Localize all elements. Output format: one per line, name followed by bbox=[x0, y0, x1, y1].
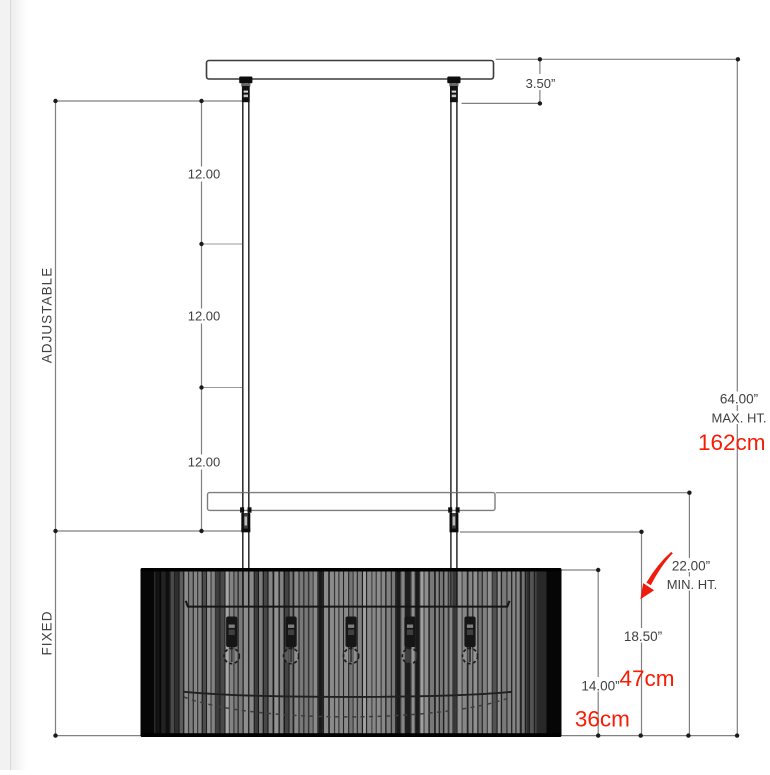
svg-text:64.00”: 64.00” bbox=[720, 391, 758, 406]
svg-text:14.00”: 14.00” bbox=[581, 679, 619, 694]
svg-text:12.00: 12.00 bbox=[188, 455, 221, 470]
svg-text:3.50”: 3.50” bbox=[526, 76, 556, 91]
svg-text:ADJUSTABLE: ADJUSTABLE bbox=[40, 267, 55, 364]
svg-text:12.00: 12.00 bbox=[188, 167, 221, 182]
svg-text:12.00: 12.00 bbox=[188, 309, 221, 324]
svg-text:MAX. HT.: MAX. HT. bbox=[712, 410, 767, 425]
svg-text:18.50”: 18.50” bbox=[624, 629, 662, 644]
svg-text:162cm: 162cm bbox=[698, 430, 766, 455]
svg-text:MIN. HT.: MIN. HT. bbox=[667, 577, 718, 592]
svg-text:FIXED: FIXED bbox=[40, 610, 55, 655]
svg-text:36cm: 36cm bbox=[575, 706, 630, 731]
svg-text:22.00”: 22.00” bbox=[672, 559, 710, 574]
svg-text:47cm: 47cm bbox=[619, 666, 674, 691]
